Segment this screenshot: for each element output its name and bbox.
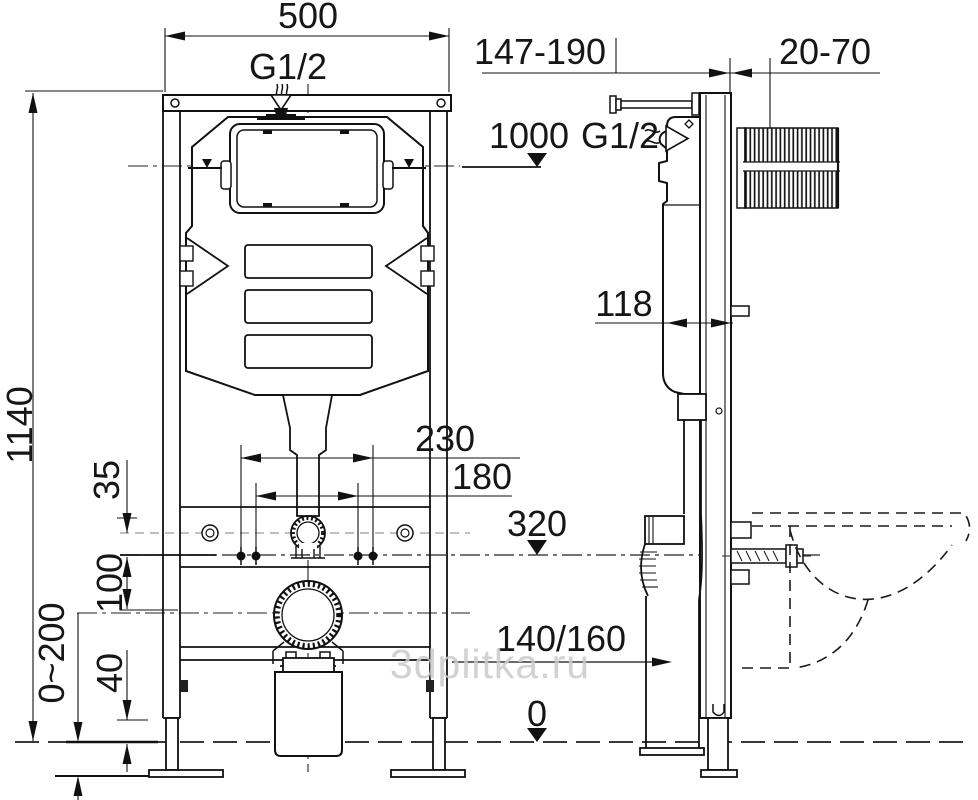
access-panel <box>221 124 393 213</box>
level-0-marker: 0 <box>527 693 547 742</box>
side-cistern-profile <box>659 117 700 394</box>
side-frame-rail <box>700 93 737 777</box>
dim-0-200: 0~200 <box>31 602 83 800</box>
technical-drawing-page: 500 G1/2 1140 35 100 40 0~200 <box>0 0 978 800</box>
level-320-marker: 320 <box>507 503 567 555</box>
side-inlet-label: G1/2 <box>581 115 659 156</box>
dim-1140-label: 1140 <box>0 386 40 463</box>
water-supply-rod <box>610 93 699 115</box>
front-inlet-label: G1/2 <box>249 46 327 87</box>
watermark: 3dplitka.ru <box>390 641 590 687</box>
flush-pipe <box>283 395 332 516</box>
dim-147-190-and-20-70: 147-190 20-70 <box>474 31 880 128</box>
dim-147-190-label: 147-190 <box>474 31 606 72</box>
dim-230-label: 230 <box>415 418 475 459</box>
drain-container <box>275 658 342 756</box>
level-0-label: 0 <box>527 693 547 734</box>
dim-118-label: 118 <box>595 283 652 324</box>
level-320-label: 320 <box>507 503 567 544</box>
dim-0-200-label: 0~200 <box>31 602 72 703</box>
dim-1140: 1140 <box>0 91 163 741</box>
installation-frame-drawing: 500 G1/2 1140 35 100 40 0~200 <box>0 0 978 800</box>
left-leg-clip <box>180 680 188 692</box>
wall-bracket-tabs <box>731 306 751 584</box>
level-1000-label: 1000 <box>489 115 569 156</box>
dim-100: 100 <box>89 553 178 613</box>
wall-finish-section <box>737 128 840 208</box>
dim-40-label: 40 <box>89 653 130 693</box>
threaded-stud <box>722 545 812 567</box>
top-mounting-plate <box>163 95 451 111</box>
side-view <box>610 93 970 777</box>
level-1000-marker: 1000 <box>462 115 569 167</box>
side-flush-and-drain-pipes <box>639 394 706 755</box>
dim-100-label: 100 <box>89 553 130 613</box>
dim-20-70-label: 20-70 <box>779 31 871 72</box>
toilet-bowl-outline <box>742 513 970 668</box>
dim-500-label: 500 <box>278 0 338 36</box>
cistern-label-recesses <box>245 245 372 368</box>
dim-180-label: 180 <box>452 456 512 497</box>
dim-35-label: 35 <box>86 460 127 500</box>
flush-pipe-clamp <box>291 516 325 558</box>
dim-35: 35 <box>86 460 137 533</box>
dim-40: 40 <box>89 650 148 772</box>
